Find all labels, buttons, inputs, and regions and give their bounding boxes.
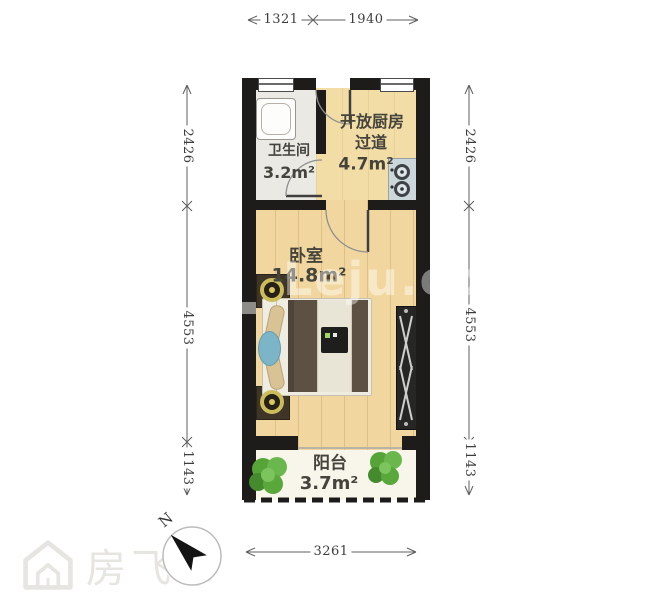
dim-right-1: 2426 bbox=[462, 125, 476, 166]
tray-dot-green bbox=[325, 333, 330, 338]
bathroom-window bbox=[258, 78, 294, 92]
wall-mid-right bbox=[368, 200, 416, 210]
kitchen-name-label-1: 开放厨房 bbox=[340, 114, 404, 130]
dim-left-1: 2426 bbox=[180, 125, 194, 166]
bathtub-basin bbox=[261, 103, 291, 135]
dim-right-3: 1143 bbox=[462, 439, 476, 480]
house-logo-icon bbox=[20, 537, 76, 593]
bathroom-name-label: 卫生间 bbox=[268, 144, 310, 158]
bathroom-area-label: 3.2m² bbox=[263, 165, 315, 181]
dim-bottom-1: 3261 bbox=[310, 545, 351, 559]
floorplan-canvas: 房飞布 bbox=[0, 0, 660, 600]
balcony-area-label: 3.7m² bbox=[300, 475, 359, 493]
dim-right-2: 4553 bbox=[462, 304, 476, 345]
dim-top-2: 1940 bbox=[345, 13, 386, 27]
wall-top-c bbox=[350, 78, 380, 90]
wall-left-shaft bbox=[242, 302, 256, 314]
wardrobe bbox=[396, 306, 418, 430]
kitchen-name-label-2: 过道 bbox=[355, 135, 387, 151]
kitchen-area-label: 4.7m² bbox=[338, 157, 393, 174]
wall-bathroom-kitchen bbox=[316, 90, 326, 154]
dim-left-3: 1143 bbox=[180, 447, 194, 488]
site-watermark: Leju.com bbox=[283, 252, 532, 306]
bed-tray bbox=[321, 327, 348, 353]
kitchen-window bbox=[380, 78, 414, 92]
brand-watermark: 房飞布 bbox=[20, 536, 221, 594]
compass-north-label: N bbox=[155, 509, 177, 531]
brand-watermark-text: 房飞布 bbox=[86, 536, 221, 594]
balcony-threshold bbox=[298, 447, 402, 449]
wall-balcony-left bbox=[242, 436, 298, 450]
dim-top-1: 1321 bbox=[260, 13, 301, 27]
wall-mid-left bbox=[242, 200, 326, 210]
balcony-name-label: 阳台 bbox=[313, 456, 347, 473]
bed-cushion bbox=[258, 331, 281, 366]
wall-balcony-right bbox=[402, 436, 416, 450]
bathtub bbox=[256, 98, 296, 140]
wall-top-b bbox=[292, 78, 316, 90]
dim-left-2: 4553 bbox=[180, 307, 194, 348]
tray-dot-white bbox=[333, 333, 337, 337]
